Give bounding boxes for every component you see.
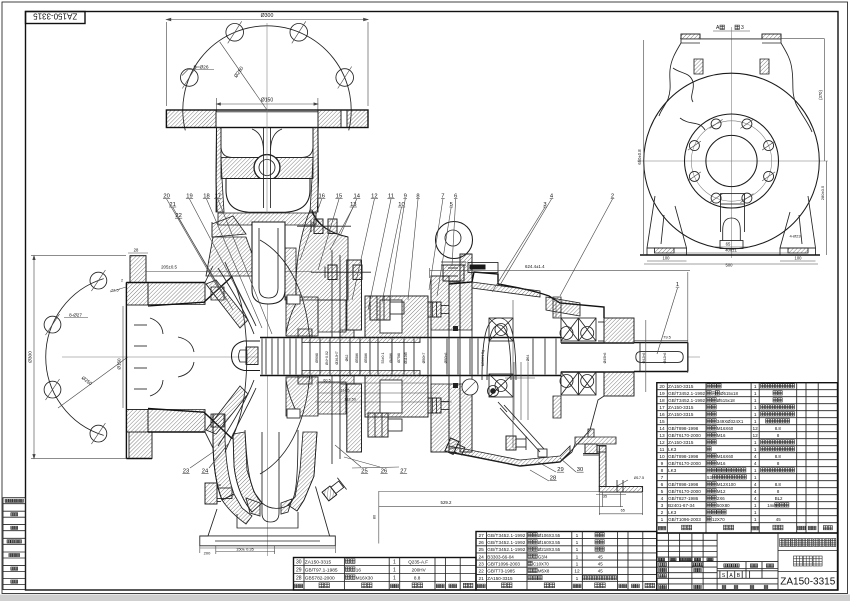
svg-text:8.8: 8.8 bbox=[414, 575, 421, 580]
svg-text:4: 4 bbox=[754, 482, 757, 488]
svg-text:1: 1 bbox=[754, 510, 757, 516]
svg-text:BL2: BL2 bbox=[775, 496, 783, 501]
svg-text:M16X60: M16X60 bbox=[717, 426, 734, 431]
svg-text:624.4±1.4: 624.4±1.4 bbox=[525, 264, 545, 269]
svg-text:150± 0.35: 150± 0.35 bbox=[236, 547, 255, 552]
svg-text:25: 25 bbox=[479, 547, 485, 553]
svg-text:14: 14 bbox=[659, 426, 665, 432]
svg-text:M16X60: M16X60 bbox=[717, 454, 734, 459]
svg-text:1: 1 bbox=[754, 398, 757, 404]
svg-text:Ø110t5: Ø110t5 bbox=[404, 352, 408, 364]
svg-text:1: 1 bbox=[393, 575, 396, 581]
svg-text:GB/T3452.1-1992: GB/T3452.1-1992 bbox=[668, 398, 705, 403]
svg-text:200: 200 bbox=[204, 551, 211, 556]
svg-text:(370): (370) bbox=[818, 90, 823, 100]
svg-text:65: 65 bbox=[726, 242, 731, 247]
svg-text:Ø90t8: Ø90t8 bbox=[315, 353, 319, 363]
svg-text:Ø42h6: Ø42h6 bbox=[663, 353, 667, 364]
svg-text:GB/T3452.1-1992: GB/T3452.1-1992 bbox=[668, 391, 705, 396]
svg-text:20: 20 bbox=[659, 384, 665, 390]
svg-text:8: 8 bbox=[661, 468, 664, 474]
svg-text:400±1: 400±1 bbox=[725, 248, 737, 253]
svg-text:Ø218X3.55: Ø218X3.55 bbox=[538, 547, 561, 552]
svg-text:ZA150-3315: ZA150-3315 bbox=[668, 412, 694, 417]
svg-text:Ø515x18: Ø515x18 bbox=[720, 391, 738, 396]
svg-text:Ø62: Ø62 bbox=[345, 355, 349, 362]
svg-text:Ø58t6: Ø58t6 bbox=[364, 353, 368, 363]
svg-text:B3303-66-04: B3303-66-04 bbox=[487, 554, 514, 559]
svg-text:205±0.5: 205±0.5 bbox=[161, 265, 177, 270]
svg-text:1: 1 bbox=[393, 567, 396, 573]
svg-text:1: 1 bbox=[576, 562, 579, 568]
svg-text:1: 1 bbox=[754, 447, 757, 453]
svg-text:4: 4 bbox=[754, 496, 757, 502]
svg-text:1: 1 bbox=[754, 503, 757, 509]
svg-text:100: 100 bbox=[663, 256, 671, 261]
svg-text:GB/T898-1998: GB/T898-1998 bbox=[668, 482, 699, 487]
svg-text:9: 9 bbox=[661, 461, 664, 467]
svg-text:4: 4 bbox=[661, 496, 664, 502]
svg-text:GB/T3452.1-1992: GB/T3452.1-1992 bbox=[487, 533, 525, 538]
svg-text:18: 18 bbox=[659, 398, 665, 404]
svg-text:GB/T827-1986: GB/T827-1986 bbox=[668, 496, 699, 501]
svg-text:1: 1 bbox=[754, 475, 757, 481]
svg-text:GB/T1096-2003: GB/T1096-2003 bbox=[668, 517, 701, 522]
svg-text:M12: M12 bbox=[717, 489, 726, 494]
svg-text:35: 35 bbox=[603, 495, 607, 499]
svg-text:30: 30 bbox=[296, 559, 302, 565]
svg-text:23: 23 bbox=[479, 562, 485, 568]
svg-text:ZA150-3315: ZA150-3315 bbox=[668, 405, 694, 410]
svg-text:GB/T6170-2000: GB/T6170-2000 bbox=[668, 461, 701, 466]
svg-text:4-Ø23: 4-Ø23 bbox=[789, 234, 801, 239]
svg-text:529.2: 529.2 bbox=[441, 500, 453, 505]
svg-text:280±0.5: 280±0.5 bbox=[820, 185, 825, 200]
svg-text:1: 1 bbox=[576, 554, 579, 560]
svg-text:GB/T898-1998: GB/T898-1998 bbox=[668, 454, 699, 459]
svg-text:1: 1 bbox=[754, 468, 757, 474]
svg-text:5: 5 bbox=[661, 489, 664, 495]
svg-text:28: 28 bbox=[296, 575, 302, 581]
svg-text:Ø48t6: Ø48t6 bbox=[389, 353, 393, 363]
svg-text:1: 1 bbox=[576, 540, 579, 546]
svg-text:45: 45 bbox=[598, 569, 603, 574]
svg-text:12: 12 bbox=[753, 433, 759, 439]
svg-text:29: 29 bbox=[296, 567, 302, 573]
svg-text:1: 1 bbox=[754, 405, 757, 411]
svg-text:60.5: 60.5 bbox=[323, 379, 330, 383]
svg-text:1: 1 bbox=[754, 384, 757, 390]
svg-text:21: 21 bbox=[479, 576, 485, 582]
svg-text:ZA150-3315: ZA150-3315 bbox=[780, 577, 835, 588]
svg-text:ZA150-3315: ZA150-3315 bbox=[487, 576, 513, 581]
svg-text:17: 17 bbox=[659, 405, 665, 411]
svg-text:65: 65 bbox=[621, 509, 625, 513]
svg-text:Ø75t8: Ø75t8 bbox=[397, 353, 401, 363]
svg-text:Ø4+0.02: Ø4+0.02 bbox=[325, 351, 329, 365]
svg-text:45: 45 bbox=[598, 554, 603, 559]
svg-text:4: 4 bbox=[754, 489, 757, 495]
svg-text:1: 1 bbox=[661, 517, 664, 523]
svg-text:2X6: 2X6 bbox=[717, 496, 725, 501]
svg-text:ZA150-3315: ZA150-3315 bbox=[668, 384, 694, 389]
svg-text:Ø515x18: Ø515x18 bbox=[717, 398, 735, 403]
svg-text:26: 26 bbox=[479, 540, 485, 546]
svg-text:11: 11 bbox=[660, 447, 665, 453]
svg-text:Ø50h7: Ø50h7 bbox=[422, 353, 426, 364]
svg-text:Ø50h6: Ø50h6 bbox=[444, 353, 448, 364]
svg-text:Ø36JH7: Ø36JH7 bbox=[335, 351, 339, 364]
svg-text:8-Ø27: 8-Ø27 bbox=[69, 313, 82, 318]
svg-text:3: 3 bbox=[741, 25, 744, 31]
svg-text:Ø150: Ø150 bbox=[117, 358, 122, 370]
svg-text:13: 13 bbox=[659, 433, 665, 439]
svg-text:24: 24 bbox=[479, 554, 485, 560]
svg-text:GB/T3452.1-1992: GB/T3452.1-1992 bbox=[487, 540, 525, 545]
svg-text:53±0.1: 53±0.1 bbox=[381, 353, 385, 364]
svg-text:1: 1 bbox=[754, 419, 757, 425]
svg-text:M12X100: M12X100 bbox=[717, 482, 736, 487]
svg-text:100: 100 bbox=[795, 256, 803, 261]
svg-text:Ø160X3.55: Ø160X3.55 bbox=[538, 540, 561, 545]
svg-text:12: 12 bbox=[574, 569, 580, 575]
svg-text:M16: M16 bbox=[717, 461, 726, 466]
svg-text:80: 80 bbox=[373, 515, 377, 519]
svg-text:500: 500 bbox=[726, 263, 734, 268]
svg-text:LK3: LK3 bbox=[668, 447, 677, 452]
svg-text:1: 1 bbox=[576, 547, 579, 553]
svg-text:Q235-A.F: Q235-A.F bbox=[408, 559, 428, 564]
svg-text:6: 6 bbox=[661, 482, 664, 488]
svg-text:C10X70: C10X70 bbox=[533, 562, 549, 567]
svg-text:GB/T898-1998: GB/T898-1998 bbox=[668, 426, 699, 431]
svg-text:19: 19 bbox=[659, 391, 665, 397]
svg-text:3: 3 bbox=[661, 503, 664, 509]
svg-text:LK3: LK3 bbox=[668, 468, 677, 473]
svg-text:12: 12 bbox=[753, 426, 759, 432]
svg-text:45: 45 bbox=[776, 517, 781, 522]
svg-text:16: 16 bbox=[356, 567, 362, 572]
svg-text:ZA150-3315: ZA150-3315 bbox=[668, 440, 694, 445]
svg-text:7: 7 bbox=[661, 475, 664, 481]
svg-text:1: 1 bbox=[754, 412, 757, 418]
svg-text:M16X30: M16X30 bbox=[356, 575, 374, 580]
svg-text:GB/T1096-2003: GB/T1096-2003 bbox=[487, 562, 520, 567]
svg-text:10: 10 bbox=[659, 454, 665, 460]
svg-text:GB/T3452.1-1992: GB/T3452.1-1992 bbox=[487, 547, 525, 552]
svg-text:2: 2 bbox=[661, 510, 664, 516]
svg-text:GB/T73-1985: GB/T73-1985 bbox=[487, 569, 515, 574]
svg-text:8.8: 8.8 bbox=[775, 482, 782, 487]
svg-text:8.8: 8.8 bbox=[775, 426, 782, 431]
svg-text:12: 12 bbox=[659, 440, 665, 446]
svg-text:M16: M16 bbox=[717, 433, 726, 438]
svg-text:133.50: 133.50 bbox=[344, 398, 356, 402]
svg-text:GB5782-2000: GB5782-2000 bbox=[305, 575, 335, 581]
svg-text:GB/T97.1-1985: GB/T97.1-1985 bbox=[305, 567, 338, 573]
svg-text:200HV: 200HV bbox=[412, 567, 427, 572]
svg-text:1: 1 bbox=[576, 533, 579, 539]
svg-text:16: 16 bbox=[659, 412, 665, 418]
svg-text:50X80: 50X80 bbox=[717, 503, 730, 508]
svg-text:53: 53 bbox=[707, 475, 712, 480]
svg-text:Ø58t6: Ø58t6 bbox=[355, 353, 359, 363]
svg-text:Ø106X3.55: Ø106X3.55 bbox=[538, 533, 561, 538]
svg-text:27: 27 bbox=[479, 533, 485, 539]
svg-text:GB/T6170-2000: GB/T6170-2000 bbox=[668, 433, 701, 438]
svg-text:650±0.8: 650±0.8 bbox=[637, 149, 642, 165]
svg-text:G3/4: G3/4 bbox=[538, 554, 548, 559]
svg-text:349XØ324X1: 349XØ324X1 bbox=[717, 419, 744, 424]
svg-text:8.8: 8.8 bbox=[775, 454, 782, 459]
svg-text:GB/T6170-2000: GB/T6170-2000 bbox=[668, 489, 701, 494]
svg-text:1: 1 bbox=[754, 391, 757, 397]
svg-text:2: 2 bbox=[121, 279, 123, 283]
svg-text:M5X8: M5X8 bbox=[538, 569, 550, 574]
svg-text:ZA150-3315: ZA150-3315 bbox=[33, 12, 78, 21]
svg-text:22: 22 bbox=[479, 569, 485, 575]
svg-text:Ø45h6: Ø45h6 bbox=[603, 353, 607, 364]
svg-text:LK3: LK3 bbox=[668, 510, 677, 515]
svg-text:1: 1 bbox=[576, 576, 579, 582]
svg-text:ZA150-3315: ZA150-3315 bbox=[305, 559, 332, 565]
svg-text:79.5: 79.5 bbox=[663, 335, 672, 340]
svg-text:1: 1 bbox=[393, 559, 396, 565]
svg-text:B2401-67-34: B2401-67-34 bbox=[668, 503, 695, 508]
svg-text:45: 45 bbox=[598, 562, 603, 567]
svg-text:Ø17.5: Ø17.5 bbox=[634, 476, 644, 480]
svg-text:Ø300: Ø300 bbox=[28, 351, 34, 363]
svg-text:4: 4 bbox=[754, 461, 757, 467]
svg-text:Ø64: Ø64 bbox=[526, 355, 530, 362]
svg-text:Ø42h6: Ø42h6 bbox=[642, 353, 646, 364]
svg-text:15: 15 bbox=[659, 419, 665, 425]
svg-text:114.5: 114.5 bbox=[340, 389, 349, 393]
svg-text:Ø300: Ø300 bbox=[261, 13, 274, 19]
svg-text:12X70: 12X70 bbox=[712, 517, 725, 522]
svg-text:4: 4 bbox=[754, 454, 757, 460]
svg-text:1: 1 bbox=[754, 517, 757, 523]
svg-text:1: 1 bbox=[754, 440, 757, 446]
svg-text:28: 28 bbox=[134, 248, 139, 253]
